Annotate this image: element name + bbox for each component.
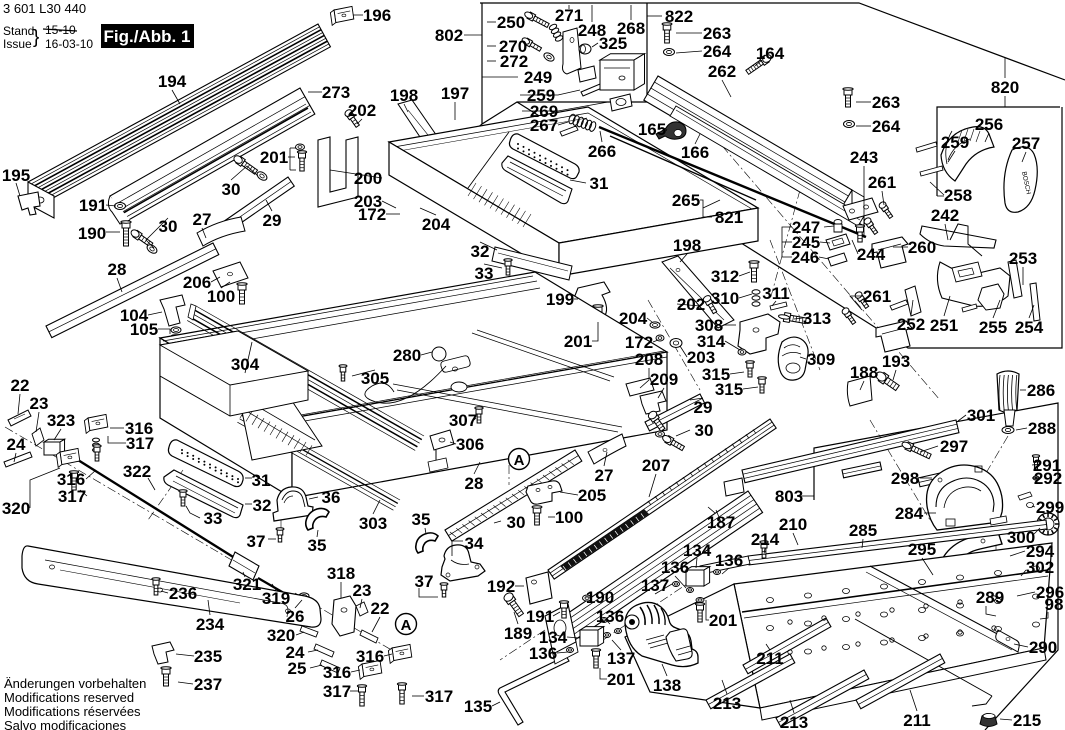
svg-text:33: 33 xyxy=(204,509,223,528)
svg-text:211: 211 xyxy=(903,711,930,730)
svg-text:164: 164 xyxy=(756,44,785,63)
svg-text:264: 264 xyxy=(703,42,732,61)
svg-text:30: 30 xyxy=(159,217,178,236)
svg-text:27: 27 xyxy=(595,466,614,485)
svg-text:172: 172 xyxy=(358,205,386,224)
svg-text:166: 166 xyxy=(681,143,709,162)
svg-text:A: A xyxy=(401,617,412,634)
svg-text:136: 136 xyxy=(529,644,557,663)
svg-text:34: 34 xyxy=(465,534,484,553)
svg-text:298: 298 xyxy=(891,469,919,488)
svg-text:288: 288 xyxy=(1028,419,1056,438)
svg-text:316: 316 xyxy=(356,647,384,666)
svg-text:307: 307 xyxy=(449,411,477,430)
svg-text:295: 295 xyxy=(908,540,936,559)
svg-text:260: 260 xyxy=(908,238,936,257)
svg-text:251: 251 xyxy=(930,316,958,335)
svg-text:Modifications reserved: Modifications reserved xyxy=(4,690,134,705)
svg-text:317: 317 xyxy=(323,682,351,701)
svg-text:204: 204 xyxy=(422,215,451,234)
svg-text:190: 190 xyxy=(586,588,614,607)
svg-text:215: 215 xyxy=(1013,711,1041,730)
svg-text:Stand: Stand xyxy=(3,24,34,38)
svg-text:197: 197 xyxy=(441,84,469,103)
svg-text:100: 100 xyxy=(555,508,583,527)
svg-text:29: 29 xyxy=(694,398,713,417)
svg-text:30: 30 xyxy=(222,180,241,199)
svg-text:250: 250 xyxy=(497,13,525,32)
svg-text:317: 317 xyxy=(425,687,453,706)
svg-text:208: 208 xyxy=(635,350,663,369)
svg-text:37: 37 xyxy=(247,532,266,551)
svg-text:200: 200 xyxy=(354,169,382,188)
svg-text:803: 803 xyxy=(775,487,803,506)
svg-text:35: 35 xyxy=(412,510,431,529)
svg-text:252: 252 xyxy=(897,315,925,334)
svg-text:189: 189 xyxy=(504,624,532,643)
svg-text:Fig./Abb. 1: Fig./Abb. 1 xyxy=(104,27,191,46)
svg-text:273: 273 xyxy=(322,83,350,102)
svg-text:266: 266 xyxy=(588,142,616,161)
svg-text:257: 257 xyxy=(1012,134,1040,153)
svg-text:255: 255 xyxy=(979,318,1007,337)
svg-text:Änderungen vorbehalten: Änderungen vorbehalten xyxy=(4,676,146,691)
svg-text:105: 105 xyxy=(130,320,158,339)
svg-text:138: 138 xyxy=(653,676,681,695)
svg-text:315: 315 xyxy=(715,380,743,399)
svg-text:802: 802 xyxy=(435,26,463,45)
svg-text:320: 320 xyxy=(2,499,30,518)
svg-text:303: 303 xyxy=(359,514,387,533)
svg-text:191: 191 xyxy=(526,607,554,626)
svg-text:237: 237 xyxy=(194,675,222,694)
svg-text:317: 317 xyxy=(58,487,86,506)
svg-text:187: 187 xyxy=(707,513,735,532)
svg-text:322: 322 xyxy=(123,462,151,481)
svg-text:192: 192 xyxy=(487,577,515,596)
svg-text:234: 234 xyxy=(196,615,225,634)
svg-text:284: 284 xyxy=(895,504,924,523)
svg-text:33: 33 xyxy=(475,264,494,283)
svg-text:201: 201 xyxy=(607,670,635,689)
svg-text:36: 36 xyxy=(322,488,341,507)
svg-text:199: 199 xyxy=(546,290,574,309)
svg-text:261: 261 xyxy=(863,287,891,306)
svg-text:323: 323 xyxy=(47,411,75,430)
svg-text:28: 28 xyxy=(465,474,484,493)
svg-text:301: 301 xyxy=(967,406,995,425)
svg-text:236: 236 xyxy=(169,584,197,603)
svg-text:310: 310 xyxy=(711,289,739,308)
svg-text:100: 100 xyxy=(207,287,235,306)
svg-text:267: 267 xyxy=(530,116,558,135)
svg-text:263: 263 xyxy=(872,93,900,112)
svg-text:313: 313 xyxy=(803,309,831,328)
svg-text:314: 314 xyxy=(697,332,726,351)
svg-text:312: 312 xyxy=(711,267,739,286)
svg-text:136: 136 xyxy=(596,607,624,626)
svg-text:235: 235 xyxy=(194,647,222,666)
svg-text:37: 37 xyxy=(415,572,434,591)
svg-text:204: 204 xyxy=(619,309,648,328)
svg-text:246: 246 xyxy=(791,248,819,267)
svg-text:202: 202 xyxy=(348,101,376,120)
svg-text:243: 243 xyxy=(850,148,878,167)
svg-text:16-03-10: 16-03-10 xyxy=(45,37,93,51)
svg-text:306: 306 xyxy=(456,435,484,454)
svg-text:305: 305 xyxy=(361,369,389,388)
svg-text:137: 137 xyxy=(607,649,635,668)
svg-text:22: 22 xyxy=(371,599,390,618)
svg-text:290: 290 xyxy=(1029,638,1057,657)
svg-text:309: 309 xyxy=(807,350,835,369)
svg-text:261: 261 xyxy=(868,173,896,192)
svg-text:194: 194 xyxy=(158,72,187,91)
svg-text:205: 205 xyxy=(578,486,606,505)
svg-text:35: 35 xyxy=(308,536,327,555)
svg-text:302: 302 xyxy=(1026,558,1054,577)
svg-text:304: 304 xyxy=(231,355,260,374)
svg-text:311: 311 xyxy=(762,284,789,303)
svg-text:297: 297 xyxy=(940,437,968,456)
svg-text:137: 137 xyxy=(641,576,669,595)
svg-text:256: 256 xyxy=(975,115,1003,134)
svg-text:29: 29 xyxy=(263,211,282,230)
svg-text:26: 26 xyxy=(286,607,305,626)
svg-text:30: 30 xyxy=(507,513,526,532)
svg-text:244: 244 xyxy=(857,245,886,264)
svg-text:198: 198 xyxy=(673,236,701,255)
svg-text:198: 198 xyxy=(390,86,418,105)
svg-text:30: 30 xyxy=(695,421,714,440)
svg-text:31: 31 xyxy=(252,471,271,490)
svg-text:280: 280 xyxy=(393,346,421,365)
svg-text:249: 249 xyxy=(524,68,552,87)
svg-text:193: 193 xyxy=(882,352,910,371)
svg-text:32: 32 xyxy=(253,496,272,515)
svg-text:202: 202 xyxy=(677,295,705,314)
svg-text:286: 286 xyxy=(1027,381,1055,400)
svg-text:207: 207 xyxy=(642,456,670,475)
svg-text:318: 318 xyxy=(327,564,355,583)
svg-text:285: 285 xyxy=(849,521,877,540)
svg-text:316: 316 xyxy=(323,663,351,682)
svg-text:263: 263 xyxy=(703,24,731,43)
svg-text:821: 821 xyxy=(715,208,743,227)
svg-text:319: 319 xyxy=(262,589,290,608)
svg-text:317: 317 xyxy=(126,434,154,453)
svg-text:196: 196 xyxy=(363,6,391,25)
svg-text:242: 242 xyxy=(931,206,959,225)
svg-text:23: 23 xyxy=(30,394,49,413)
svg-text:195: 195 xyxy=(2,166,30,185)
svg-text:}: } xyxy=(33,27,39,48)
svg-text:23: 23 xyxy=(353,581,372,600)
svg-text:214: 214 xyxy=(751,530,780,549)
svg-text:292: 292 xyxy=(1034,469,1062,488)
svg-text:191: 191 xyxy=(79,196,107,215)
svg-text:820: 820 xyxy=(991,78,1019,97)
svg-text:209: 209 xyxy=(650,370,678,389)
svg-text:190: 190 xyxy=(78,224,106,243)
svg-text:262: 262 xyxy=(708,62,736,81)
svg-text:27: 27 xyxy=(193,210,212,229)
svg-text:201: 201 xyxy=(709,611,737,630)
svg-text:265: 265 xyxy=(672,191,700,210)
svg-text:3 601 L30 440: 3 601 L30 440 xyxy=(3,1,86,16)
svg-text:254: 254 xyxy=(1015,318,1044,337)
svg-text:165: 165 xyxy=(638,120,666,139)
svg-text:210: 210 xyxy=(779,515,807,534)
svg-text:211: 211 xyxy=(756,649,783,668)
svg-text:25: 25 xyxy=(288,659,307,678)
svg-text:321: 321 xyxy=(233,575,261,594)
svg-text:135: 135 xyxy=(464,697,492,716)
svg-text:201: 201 xyxy=(260,148,288,167)
svg-text:258: 258 xyxy=(944,186,972,205)
svg-text:213: 213 xyxy=(780,713,808,730)
svg-text:264: 264 xyxy=(872,117,901,136)
svg-text:A: A xyxy=(514,452,525,469)
svg-text:822: 822 xyxy=(665,7,693,26)
svg-text:136: 136 xyxy=(661,558,689,577)
svg-text:32: 32 xyxy=(471,242,490,261)
svg-text:24: 24 xyxy=(7,435,26,454)
svg-text:Modifications réservées: Modifications réservées xyxy=(4,704,141,719)
svg-text:325: 325 xyxy=(599,34,627,53)
svg-text:201: 201 xyxy=(564,332,592,351)
svg-text:Salvo modificaciones: Salvo modificaciones xyxy=(4,718,127,730)
svg-text:28: 28 xyxy=(108,260,127,279)
svg-text:31: 31 xyxy=(590,174,609,193)
svg-text:136: 136 xyxy=(715,551,743,570)
svg-text:22: 22 xyxy=(11,376,30,395)
svg-text:259: 259 xyxy=(941,133,969,152)
svg-text:188: 188 xyxy=(850,363,878,382)
svg-text:213: 213 xyxy=(713,694,741,713)
svg-text:299: 299 xyxy=(1036,498,1064,517)
svg-text:253: 253 xyxy=(1009,249,1037,268)
svg-text:98: 98 xyxy=(1045,595,1064,614)
svg-text:289: 289 xyxy=(976,588,1004,607)
svg-text:Issue: Issue xyxy=(3,37,32,51)
